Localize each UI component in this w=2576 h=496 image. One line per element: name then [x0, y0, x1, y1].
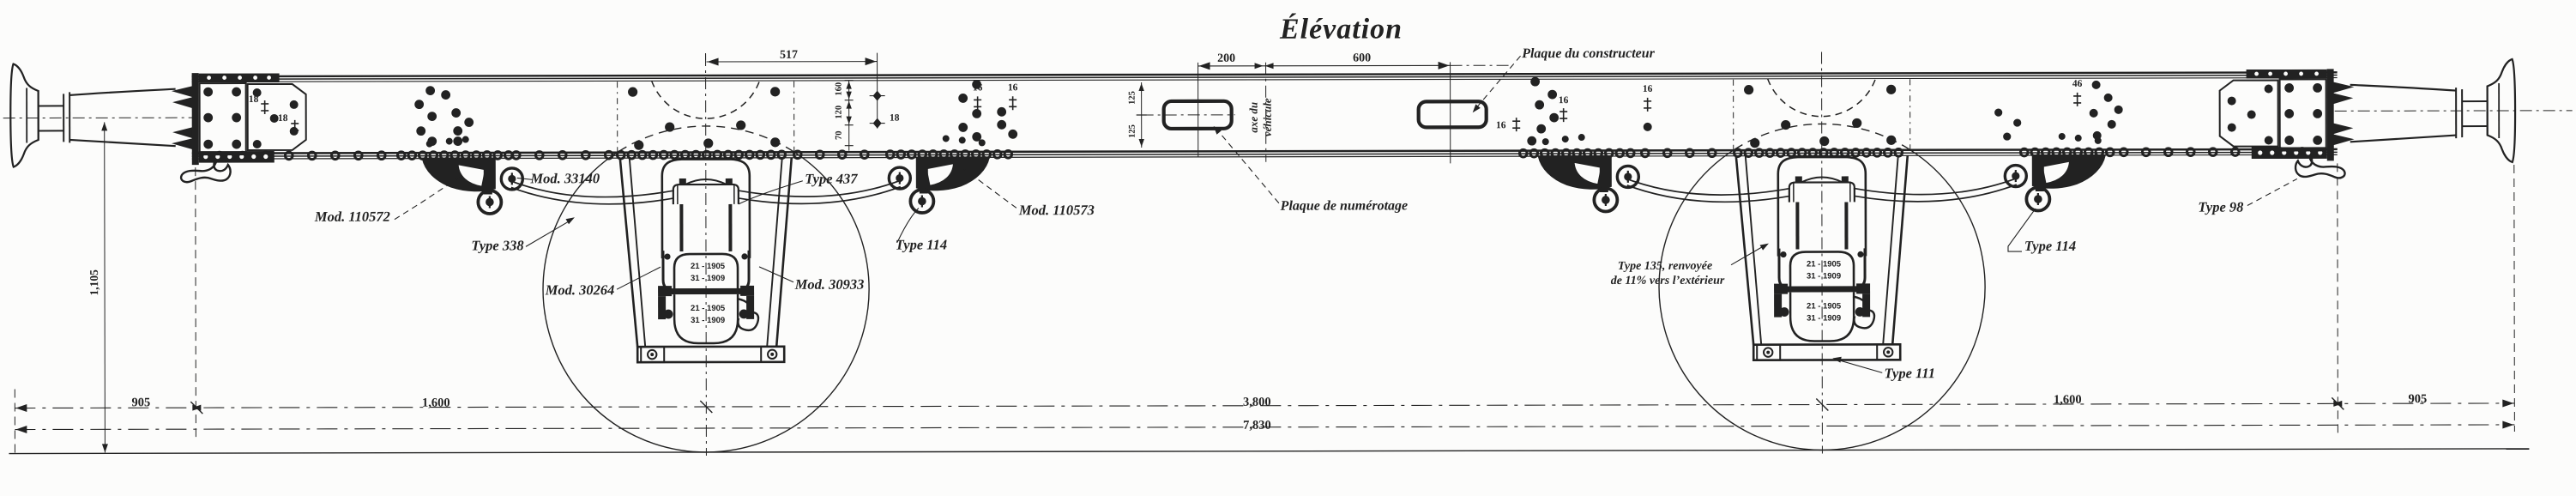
svg-text:125: 125 — [1128, 91, 1137, 105]
svg-text:600: 600 — [1353, 52, 1371, 65]
svg-text:31 - 1909: 31 - 1909 — [1807, 313, 1841, 323]
svg-text:Type 98: Type 98 — [2198, 199, 2243, 215]
svg-text:de 11% vers l’extérieur: de 11% vers l’extérieur — [1611, 275, 1725, 287]
svg-text:Mod. 30933: Mod. 30933 — [794, 276, 865, 293]
svg-text:905: 905 — [131, 396, 150, 409]
svg-text:Type 437: Type 437 — [805, 171, 858, 187]
svg-text:31 - 1909: 31 - 1909 — [691, 316, 725, 325]
svg-text:31 - 1909: 31 - 1909 — [691, 274, 725, 283]
svg-text:axe du: axe du — [1247, 102, 1260, 133]
svg-text:70: 70 — [835, 130, 844, 140]
svg-text:120: 120 — [835, 106, 844, 119]
svg-text:125: 125 — [1128, 124, 1137, 138]
svg-text:31 - 1909: 31 - 1909 — [1807, 271, 1841, 281]
svg-text:18: 18 — [249, 94, 259, 105]
svg-text:1,600: 1,600 — [422, 396, 450, 410]
svg-text:21 - 1905: 21 - 1905 — [691, 304, 726, 313]
svg-text:18: 18 — [278, 113, 288, 124]
svg-text:18: 18 — [890, 113, 900, 124]
svg-text:véhicule: véhicule — [1261, 98, 1274, 136]
svg-text:160: 160 — [835, 82, 844, 96]
svg-text:3,800: 3,800 — [1243, 396, 1271, 409]
svg-text:16: 16 — [1496, 120, 1506, 130]
svg-text:905: 905 — [2408, 392, 2427, 406]
svg-text:Élévation: Élévation — [1279, 13, 1403, 45]
svg-text:200: 200 — [1217, 52, 1235, 65]
svg-text:16: 16 — [1643, 84, 1653, 94]
svg-text:Plaque de numérotage: Plaque de numérotage — [1280, 198, 1408, 213]
svg-text:Type 338: Type 338 — [471, 237, 523, 253]
svg-text:Mod. 33140: Mod. 33140 — [529, 170, 600, 186]
svg-text:46: 46 — [2072, 79, 2083, 89]
svg-text:16: 16 — [1559, 95, 1569, 106]
svg-text:Plaque du constructeur: Plaque du constructeur — [1521, 46, 1655, 61]
svg-text:16: 16 — [973, 82, 983, 93]
svg-text:21 - 1905: 21 - 1905 — [1807, 301, 1842, 311]
svg-text:Mod. 110573: Mod. 110573 — [1018, 202, 1095, 218]
svg-text:517: 517 — [780, 49, 798, 62]
svg-text:Type 114: Type 114 — [896, 236, 947, 252]
svg-text:Type 114: Type 114 — [2024, 238, 2076, 254]
svg-text:1,600: 1,600 — [2054, 393, 2082, 407]
svg-text:7,830: 7,830 — [1243, 419, 1271, 432]
svg-text:Mod. 110572: Mod. 110572 — [314, 209, 390, 225]
svg-text:21 - 1905: 21 - 1905 — [691, 262, 726, 271]
svg-text:Mod. 30264: Mod. 30264 — [545, 281, 615, 298]
svg-text:16: 16 — [1008, 82, 1018, 93]
svg-text:Type 135, renvoyée: Type 135, renvoyée — [1618, 260, 1712, 273]
svg-text:Type 111: Type 111 — [1885, 365, 1935, 381]
svg-text:21 - 1905: 21 - 1905 — [1807, 259, 1842, 269]
svg-text:1,105: 1,105 — [87, 269, 100, 296]
